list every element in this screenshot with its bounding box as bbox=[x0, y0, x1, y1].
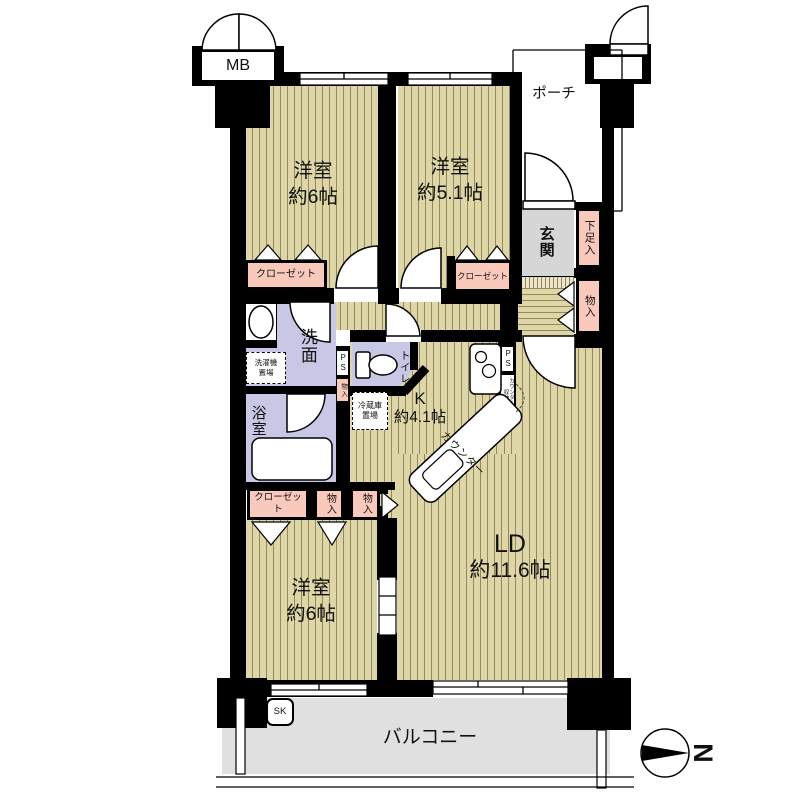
porch-door-arc bbox=[610, 6, 648, 44]
compass bbox=[641, 729, 689, 777]
bedroom3-name: 洋室 bbox=[263, 575, 359, 601]
wall-bedroom3-right-a bbox=[377, 518, 397, 580]
kitchen-name: K bbox=[395, 388, 445, 410]
bedroom1-name: 洋室 bbox=[266, 158, 360, 184]
toilet-label: トイレ bbox=[396, 344, 412, 390]
bedroom1-size: 約6帖 bbox=[266, 184, 360, 210]
bedroom3-size: 約6帖 bbox=[263, 601, 359, 627]
balcony-label: バルコニー bbox=[355, 726, 505, 750]
wall-wash-bath bbox=[245, 386, 336, 394]
mb-box: MB bbox=[202, 52, 274, 80]
floor-hall bbox=[518, 288, 574, 336]
bedroom2-size: 約5.1帖 bbox=[398, 180, 502, 206]
bath-label: 浴室 bbox=[248, 398, 268, 444]
compass-arrow bbox=[642, 745, 689, 761]
wall-storage-bottom bbox=[574, 334, 602, 342]
closet-bedroom1: クローゼット bbox=[245, 260, 327, 290]
bedroom2-name: 洋室 bbox=[398, 154, 502, 180]
wall-vanity-bottom bbox=[245, 340, 277, 348]
wall-divider-12 bbox=[378, 72, 396, 288]
wall-block-bottom-left bbox=[217, 678, 267, 728]
wall-shoe-storage bbox=[574, 268, 602, 278]
wall-left bbox=[230, 72, 246, 697]
wall-porch-lower bbox=[600, 84, 634, 128]
ld-name: LD bbox=[460, 530, 560, 558]
genkan-area: 玄関 bbox=[518, 208, 574, 276]
pipe-space-1: PS bbox=[336, 350, 349, 376]
mb-door-left bbox=[202, 14, 239, 50]
wall-right bbox=[602, 128, 614, 680]
storage-small: 物入 bbox=[336, 378, 349, 402]
storage-2: 物入 bbox=[350, 488, 380, 520]
counter-storage: カウンター下収納 bbox=[500, 374, 515, 414]
storage-hall: 物入 bbox=[576, 278, 602, 334]
slop-sink: SK bbox=[266, 698, 294, 726]
porch-label: ポーチ bbox=[522, 84, 586, 104]
kitchen-size: 約4.1帖 bbox=[378, 408, 462, 428]
washroom-label: 洗面 bbox=[296, 320, 318, 372]
pipe-space-2: PS bbox=[501, 346, 514, 372]
wall-bed-bottom-b bbox=[378, 288, 399, 304]
floor-corridor bbox=[334, 302, 500, 330]
mb-door-right bbox=[239, 14, 276, 50]
porch-inset bbox=[593, 56, 643, 80]
floor-plan: 玄関 クローゼット クローゼット クローゼット 物入 物入 下足入 物入 PS … bbox=[0, 0, 801, 801]
wall-pier3 bbox=[380, 482, 388, 494]
window-ld-balcony bbox=[433, 681, 568, 694]
wall-block-bottom-right bbox=[567, 678, 631, 730]
wall-bed-bottom-a bbox=[230, 288, 334, 304]
closet-bedroom2: クローゼット bbox=[453, 260, 512, 292]
laundry-space: 洗濯機置場 bbox=[246, 352, 286, 384]
vanity-niche bbox=[245, 302, 277, 342]
floor-ld-patch bbox=[498, 416, 516, 454]
closet-bedroom3: クローゼット bbox=[247, 488, 309, 520]
wall-corridor-bottom-a bbox=[350, 330, 386, 342]
ld-size: 約11.6帖 bbox=[448, 558, 572, 584]
mb-notch bbox=[215, 86, 270, 128]
genkan-door-arc bbox=[525, 153, 573, 201]
shoe-box: 下足入 bbox=[576, 208, 602, 268]
door-bedroom3-ld bbox=[379, 577, 396, 635]
genkan-label: 玄関 bbox=[536, 226, 555, 258]
storage-1: 物入 bbox=[314, 488, 344, 520]
compass-north-label: N bbox=[686, 736, 720, 770]
wall-ld-bottom-pier bbox=[400, 680, 433, 697]
